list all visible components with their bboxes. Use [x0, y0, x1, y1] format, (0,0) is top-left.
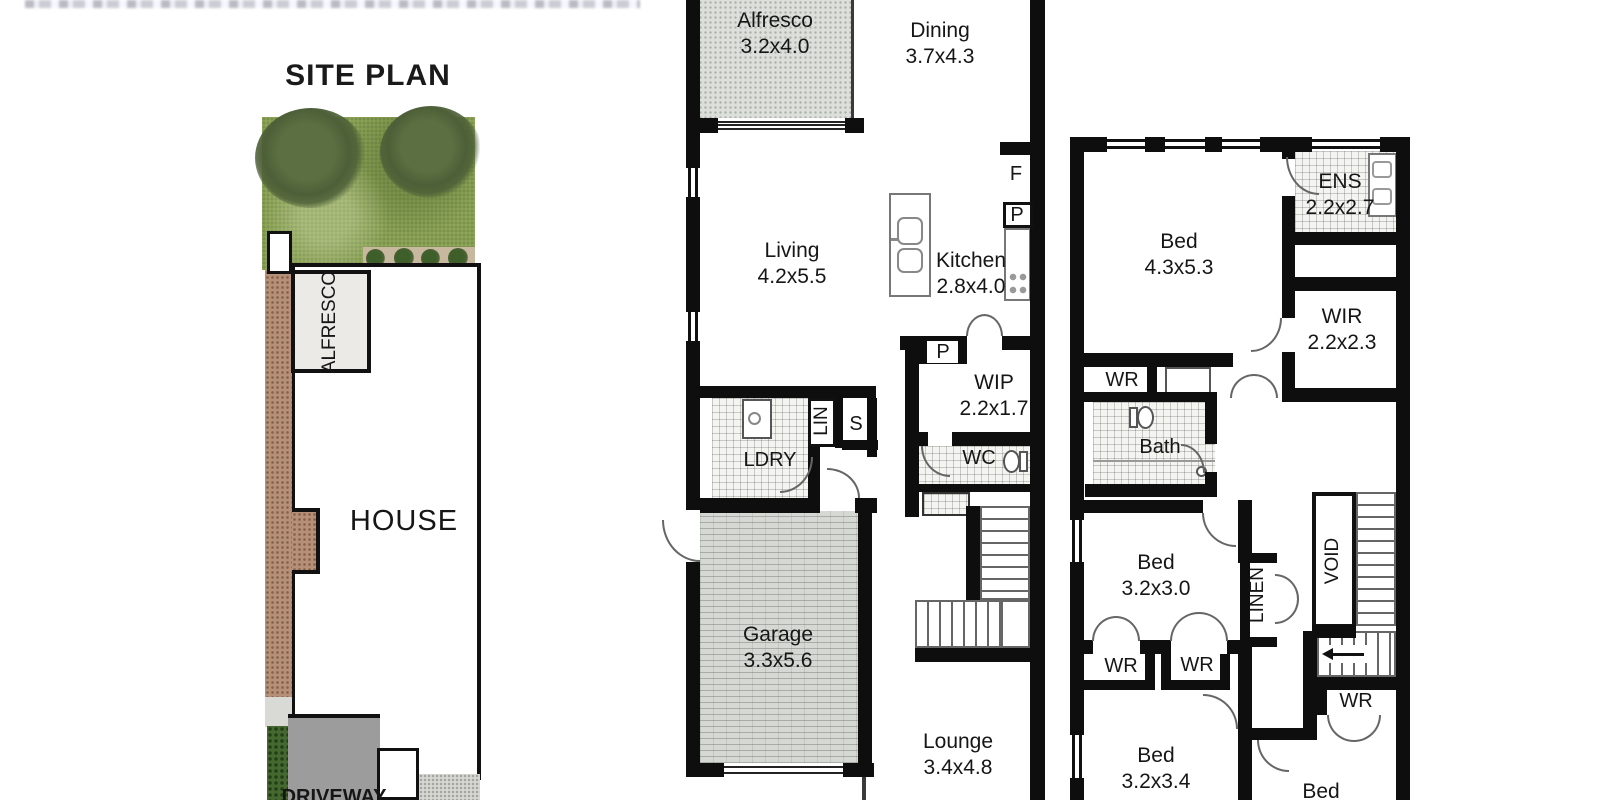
garage-door — [724, 766, 843, 774]
toilet-icon — [1003, 450, 1020, 473]
wall — [1085, 484, 1215, 497]
window — [1107, 139, 1145, 149]
wall — [686, 0, 700, 168]
wall — [1070, 562, 1084, 735]
stairs — [1356, 492, 1396, 626]
wall — [700, 386, 876, 398]
wall — [686, 118, 718, 133]
toilet-tank — [1129, 407, 1138, 428]
door-arc — [1275, 574, 1299, 599]
window — [1072, 735, 1082, 778]
room-name: Bed — [1122, 743, 1191, 769]
site-alfresco-label: ALFRESCO — [319, 271, 341, 373]
toilet-icon — [1137, 406, 1154, 429]
wall — [1252, 728, 1307, 740]
label-wr: WR — [1105, 367, 1138, 393]
wall — [686, 562, 700, 777]
label-laundry: LDRY — [744, 447, 797, 473]
room-label-kitchen: Kitchen 2.8x4.0 — [936, 248, 1006, 300]
room-label-lounge: Lounge 3.4x4.8 — [923, 729, 993, 781]
room-dims: 3.2x3.0 — [1122, 576, 1191, 602]
wall — [905, 432, 928, 446]
room-name: Alfresco — [737, 8, 813, 34]
label-pantry: P — [1010, 202, 1023, 228]
room-name: Bed — [1122, 550, 1191, 576]
window — [1165, 139, 1205, 149]
wall — [952, 432, 1033, 446]
door-arc — [1116, 616, 1140, 641]
tap-icon — [891, 238, 899, 241]
tree — [380, 106, 482, 198]
floorplan-canvas: SITE PLAN ALFRESCO HOUSE DRIVEWAY — [0, 0, 1600, 800]
room-dims: 3.7x4.3 — [906, 44, 975, 70]
mulch-notch — [292, 508, 320, 574]
wall — [842, 440, 878, 450]
store-nook — [922, 492, 970, 516]
wall — [1205, 392, 1217, 444]
wall — [1145, 137, 1165, 152]
wall — [1303, 631, 1317, 688]
wall — [1227, 640, 1252, 654]
room-name: Bed — [1145, 229, 1214, 255]
door-arc — [1170, 612, 1199, 641]
wall — [1145, 654, 1155, 690]
label-linen: LIN — [811, 406, 833, 436]
label-wr: WR — [1339, 688, 1372, 714]
room-label-ens: ENS 2.2x2.7 — [1306, 169, 1375, 221]
window — [1222, 139, 1260, 149]
door-arc — [984, 314, 1003, 336]
site-house-label: HOUSE — [350, 508, 458, 534]
door-arc — [1354, 715, 1381, 742]
window — [1072, 520, 1082, 562]
door-arc — [1251, 318, 1282, 352]
wall — [1238, 654, 1252, 800]
stair-arrow-stem — [1331, 653, 1364, 656]
wall — [1000, 142, 1032, 155]
room-name: Lounge — [923, 729, 993, 755]
wall — [686, 197, 700, 312]
porch — [267, 231, 292, 274]
window — [1312, 139, 1380, 149]
room-name: ENS — [1306, 169, 1375, 195]
wall — [1295, 277, 1396, 291]
label-wr: WR — [1180, 652, 1213, 678]
wall — [1205, 137, 1222, 152]
label-pantry: P — [936, 339, 949, 365]
room-dims: 4.3x5.3 — [1145, 255, 1214, 281]
room-name: Garage — [743, 622, 813, 648]
basin — [1372, 188, 1392, 205]
room-dims: 3.3x5.6 — [743, 648, 813, 674]
room-dims: 2.2x1.7 — [960, 396, 1029, 422]
room-dims: 3.2x3.4 — [1122, 769, 1191, 795]
mulch-strip — [265, 270, 292, 700]
wall — [1070, 137, 1084, 520]
door-arc — [1257, 740, 1289, 772]
label-store: S — [849, 411, 862, 437]
door-arc — [662, 520, 700, 562]
wall — [1147, 353, 1157, 402]
wall — [915, 648, 1045, 662]
wall — [1220, 654, 1230, 690]
tree — [255, 108, 367, 208]
room-dims: 2.8x4.0 — [936, 274, 1006, 300]
wall — [915, 484, 1033, 492]
door-arc — [1092, 616, 1116, 641]
wall — [1140, 640, 1171, 654]
wall — [1295, 232, 1396, 245]
wall — [700, 498, 808, 513]
label-linen: LINEN — [1247, 567, 1269, 623]
room-label-living: Living 4.2x5.5 — [758, 238, 827, 290]
wall — [1083, 500, 1203, 513]
wall — [1083, 353, 1233, 367]
door-arc — [1327, 715, 1354, 742]
site-driveway-label: DRIVEWAY — [282, 784, 387, 800]
label-fridge: F — [1010, 161, 1022, 187]
basin — [1372, 161, 1392, 178]
room-label-wip: WIP 2.2x1.7 — [960, 370, 1029, 422]
room-label-bed4: Bed — [1302, 779, 1339, 800]
room-dims: 2.2x2.3 — [1308, 330, 1377, 356]
label-wc: WC — [962, 445, 995, 471]
washer-door-icon — [748, 412, 761, 425]
room-label-bed2: Bed 3.2x3.0 — [1122, 550, 1191, 602]
label-bath: Bath — [1139, 434, 1180, 460]
wall — [843, 763, 874, 777]
room-dims: 2.2x2.7 — [1306, 195, 1375, 221]
room-label-wir: WIR 2.2x2.3 — [1308, 304, 1377, 356]
door-arc — [1230, 374, 1254, 398]
wall — [1282, 196, 1295, 318]
window — [688, 312, 698, 341]
label-wr: WR — [1104, 653, 1137, 679]
wall — [862, 777, 866, 800]
wall — [858, 511, 872, 777]
room-name: Living — [758, 238, 827, 264]
door-arc — [1203, 694, 1238, 729]
room-dims: 4.2x5.5 — [758, 264, 827, 290]
cropped-text-artifact — [25, 0, 640, 8]
door-arc — [1199, 612, 1228, 641]
kitchen-island — [889, 193, 931, 297]
wall — [966, 506, 980, 600]
door-arc — [1202, 513, 1236, 547]
room-name: WIP — [960, 370, 1029, 396]
wall — [1282, 388, 1410, 402]
sink — [897, 217, 923, 245]
gravel — [419, 774, 480, 800]
wall — [1205, 472, 1217, 497]
room-name: Dining — [906, 18, 975, 44]
wall — [1083, 640, 1093, 654]
room-label-bed1: Bed 4.3x5.3 — [1145, 229, 1214, 281]
room-label-dining: Dining 3.7x4.3 — [906, 18, 975, 70]
alfresco-post-line — [851, 0, 854, 118]
wall — [1070, 778, 1084, 800]
wall — [1396, 137, 1410, 800]
wall — [1260, 137, 1312, 152]
site-plan-title: SITE PLAN — [285, 59, 451, 93]
wall — [1030, 0, 1045, 800]
toilet-tank — [1019, 451, 1028, 472]
stair-landing — [1001, 600, 1030, 648]
wall — [1317, 690, 1327, 715]
cooktop-icon — [1006, 270, 1030, 298]
wall — [700, 763, 724, 777]
room-dims: 3.2x4.0 — [737, 34, 813, 60]
wall — [686, 341, 700, 510]
room-name: Bed — [1302, 779, 1339, 800]
door-arc — [1275, 599, 1299, 624]
room-name: Kitchen — [936, 248, 1006, 274]
door-arc — [827, 468, 860, 498]
room-label-garage: Garage 3.3x5.6 — [743, 622, 813, 674]
stairs — [980, 506, 1030, 600]
room-name: WIR — [1308, 304, 1377, 330]
sink — [897, 248, 923, 273]
wall — [845, 118, 864, 133]
sliding-door — [718, 121, 845, 130]
stairs — [915, 600, 1001, 648]
window — [688, 168, 698, 197]
label-void: VOID — [1322, 538, 1344, 584]
room-dims: 3.4x4.8 — [923, 755, 993, 781]
door-arc — [966, 314, 985, 336]
wall — [1002, 336, 1030, 350]
room-label-alfresco: Alfresco 3.2x4.0 — [737, 8, 813, 60]
room-label-bed3: Bed 3.2x3.4 — [1122, 743, 1191, 795]
door-arc — [1254, 374, 1278, 398]
wall — [1312, 625, 1356, 638]
